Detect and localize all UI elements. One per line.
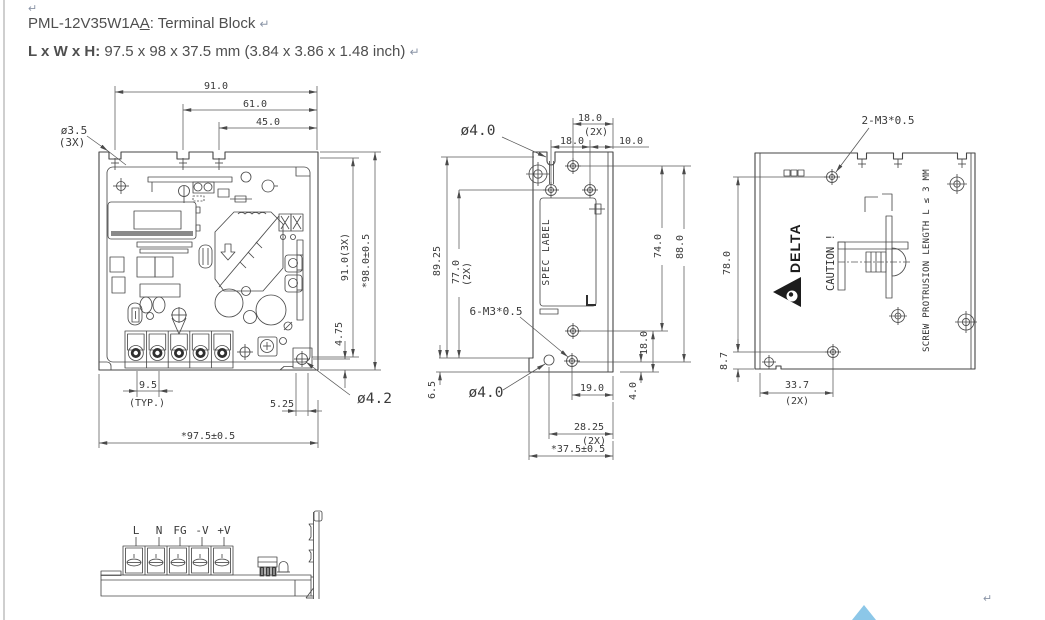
dim-4-label: 4.0 (628, 382, 639, 400)
dim-61-label: 61.0 (243, 99, 267, 110)
terminal-label-fg: FG (173, 524, 186, 537)
terminal-label-negv: -V (195, 524, 209, 537)
dim-77-label: 77.0 (451, 260, 462, 284)
terminal-label-n: N (156, 524, 163, 537)
spec-label-text: SPEC LABEL (541, 218, 552, 285)
pcb-components (108, 172, 303, 360)
vent-slots (784, 170, 804, 176)
delta-logo-text: DELTA (787, 223, 803, 273)
down-arrow-icon (221, 244, 235, 260)
top-view: 91.0 61.0 45.0 ø3.5 (3X) 91.0(3X) *98.0±… (59, 81, 392, 448)
dim-18-top-label: 18.0 (578, 113, 602, 124)
screw-note-2-m3: 2-M3*0.5 (862, 114, 915, 127)
hole-4-0-top-label: ø4.0 (461, 123, 496, 139)
side-view-dimensions (436, 118, 691, 460)
technical-drawing: 91.0 61.0 45.0 ø3.5 (3X) 91.0(3X) *98.0±… (0, 0, 1045, 620)
dim-8-7-label: 8.7 (719, 352, 730, 370)
keyhole-4-0 (526, 162, 550, 186)
dim-19-label: 19.0 (580, 383, 604, 394)
dim-10-label: 10.0 (619, 136, 643, 147)
dim-18-screws-label: 18.0 (560, 136, 584, 147)
screw-note-6-m3: 6-M3*0.5 (470, 305, 523, 318)
dim-74-label: 74.0 (653, 234, 664, 258)
paragraph-mark: ↵ (983, 592, 992, 605)
delta-logo: DELTA (773, 223, 803, 307)
led-icon (279, 562, 288, 573)
dim-97-5-label: *97.5±0.5 (181, 431, 235, 442)
connector-and-led (258, 557, 290, 576)
caution-text: CAUTION ! (825, 234, 837, 291)
dim-33-7-label: 33.7 (785, 380, 809, 391)
back-slot-marks (858, 159, 966, 168)
terminal-block-side (123, 546, 233, 575)
dim-88-label: 88.0 (675, 235, 686, 259)
chassis-base (101, 571, 314, 596)
hole-3-5-qty: (3X) (59, 136, 86, 149)
terminal-label-posv: +V (217, 524, 231, 537)
dim-91-label: 91.0 (204, 81, 228, 92)
terminal-label-l: L (133, 524, 140, 537)
side-view: SPEC LABEL (427, 113, 691, 460)
screw-protrusion-diagram (838, 194, 912, 298)
hole-4-2-label: ø4.2 (357, 391, 392, 407)
dim-18-right-label: 18.0 (639, 331, 650, 355)
dim-18-top-qty: (2X) (584, 127, 608, 138)
top-view-dimensions (87, 86, 381, 448)
terminal-leader-lines (136, 537, 224, 546)
dim-98-label: *98.0±0.5 (361, 234, 372, 288)
dim-89-25-label: 89.25 (432, 246, 443, 276)
blue-triangle-marker (851, 604, 877, 620)
dim-33-7-qty: (2X) (785, 396, 809, 407)
dim-4-75-label: 4.75 (334, 322, 345, 346)
mount-ear (280, 348, 312, 370)
dim-78-label: 78.0 (722, 251, 733, 275)
back-view: DELTA CAUTION ! SCREW PROTRUSION LENGTH … (719, 114, 977, 407)
dim-45-label: 45.0 (256, 117, 280, 128)
side-bracket-panel (306, 511, 322, 599)
dim-5-25-label: 5.25 (270, 399, 294, 410)
dim-typ-label: (TYP.) (129, 398, 165, 409)
pcb-outline (107, 167, 310, 362)
dim-9-5-label: 9.5 (139, 380, 157, 391)
dim-28-25-label: 28.25 (574, 422, 604, 433)
hole-4-0-bottom-label: ø4.0 (469, 385, 504, 401)
dim-37-5-label: *37.5±0.5 (551, 444, 605, 455)
case-foot (99, 362, 111, 370)
dim-6-5-label: 6.5 (427, 381, 438, 399)
terminal-view: L N FG -V +V (101, 511, 322, 599)
dim-77-qty: (2X) (462, 262, 473, 286)
protrusion-note-text: SCREW PROTRUSION LENGTH L ≤ 3 MM (922, 169, 932, 352)
delta-triangle-icon (773, 277, 801, 307)
top-slot-marks (111, 158, 223, 170)
terminal-strip (125, 331, 233, 368)
document-page: ↵ PML-12V35W1AA: Terminal Block ↵ L x W … (0, 0, 1045, 620)
dim-91-3x-label: 91.0(3X) (340, 233, 351, 281)
